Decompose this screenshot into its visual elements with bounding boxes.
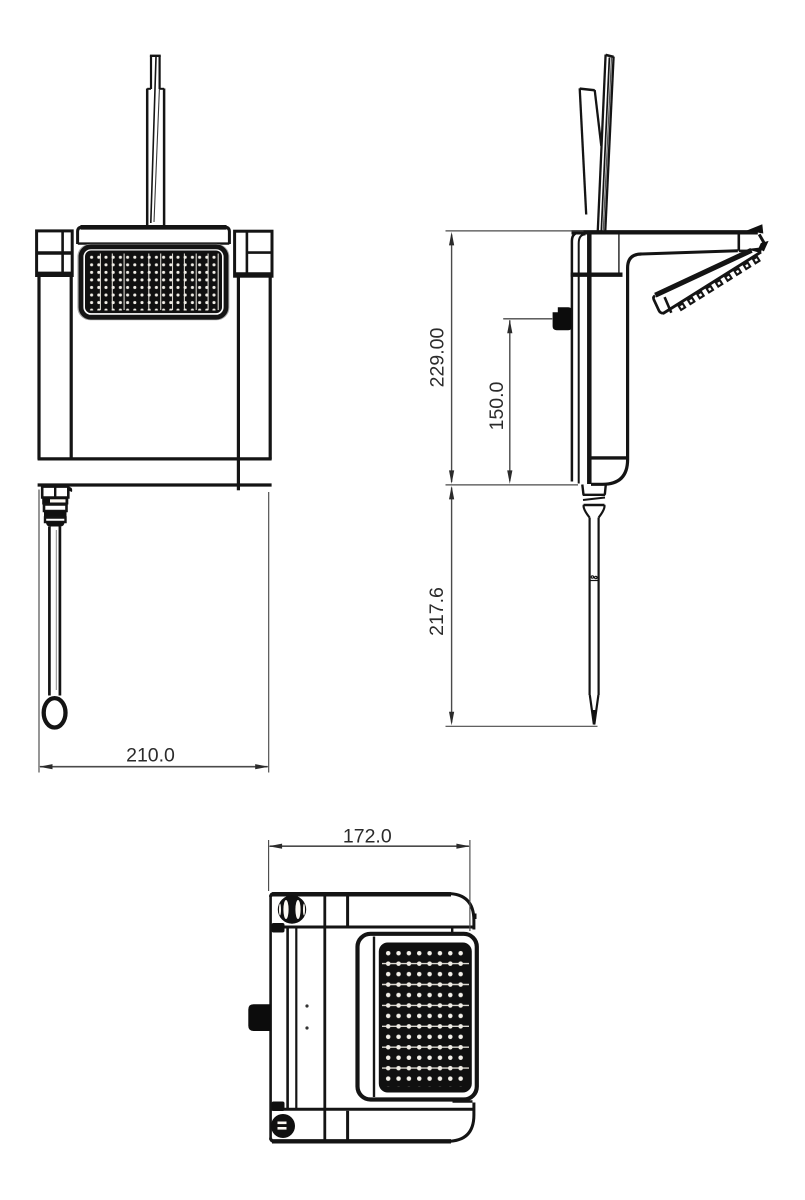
svg-text:217.6: 217.6 bbox=[426, 587, 448, 636]
svg-text:150.0: 150.0 bbox=[486, 381, 508, 430]
svg-text:210.0: 210.0 bbox=[126, 745, 175, 767]
svg-text:229.00: 229.00 bbox=[427, 328, 449, 388]
svg-text:172.0: 172.0 bbox=[343, 826, 392, 848]
